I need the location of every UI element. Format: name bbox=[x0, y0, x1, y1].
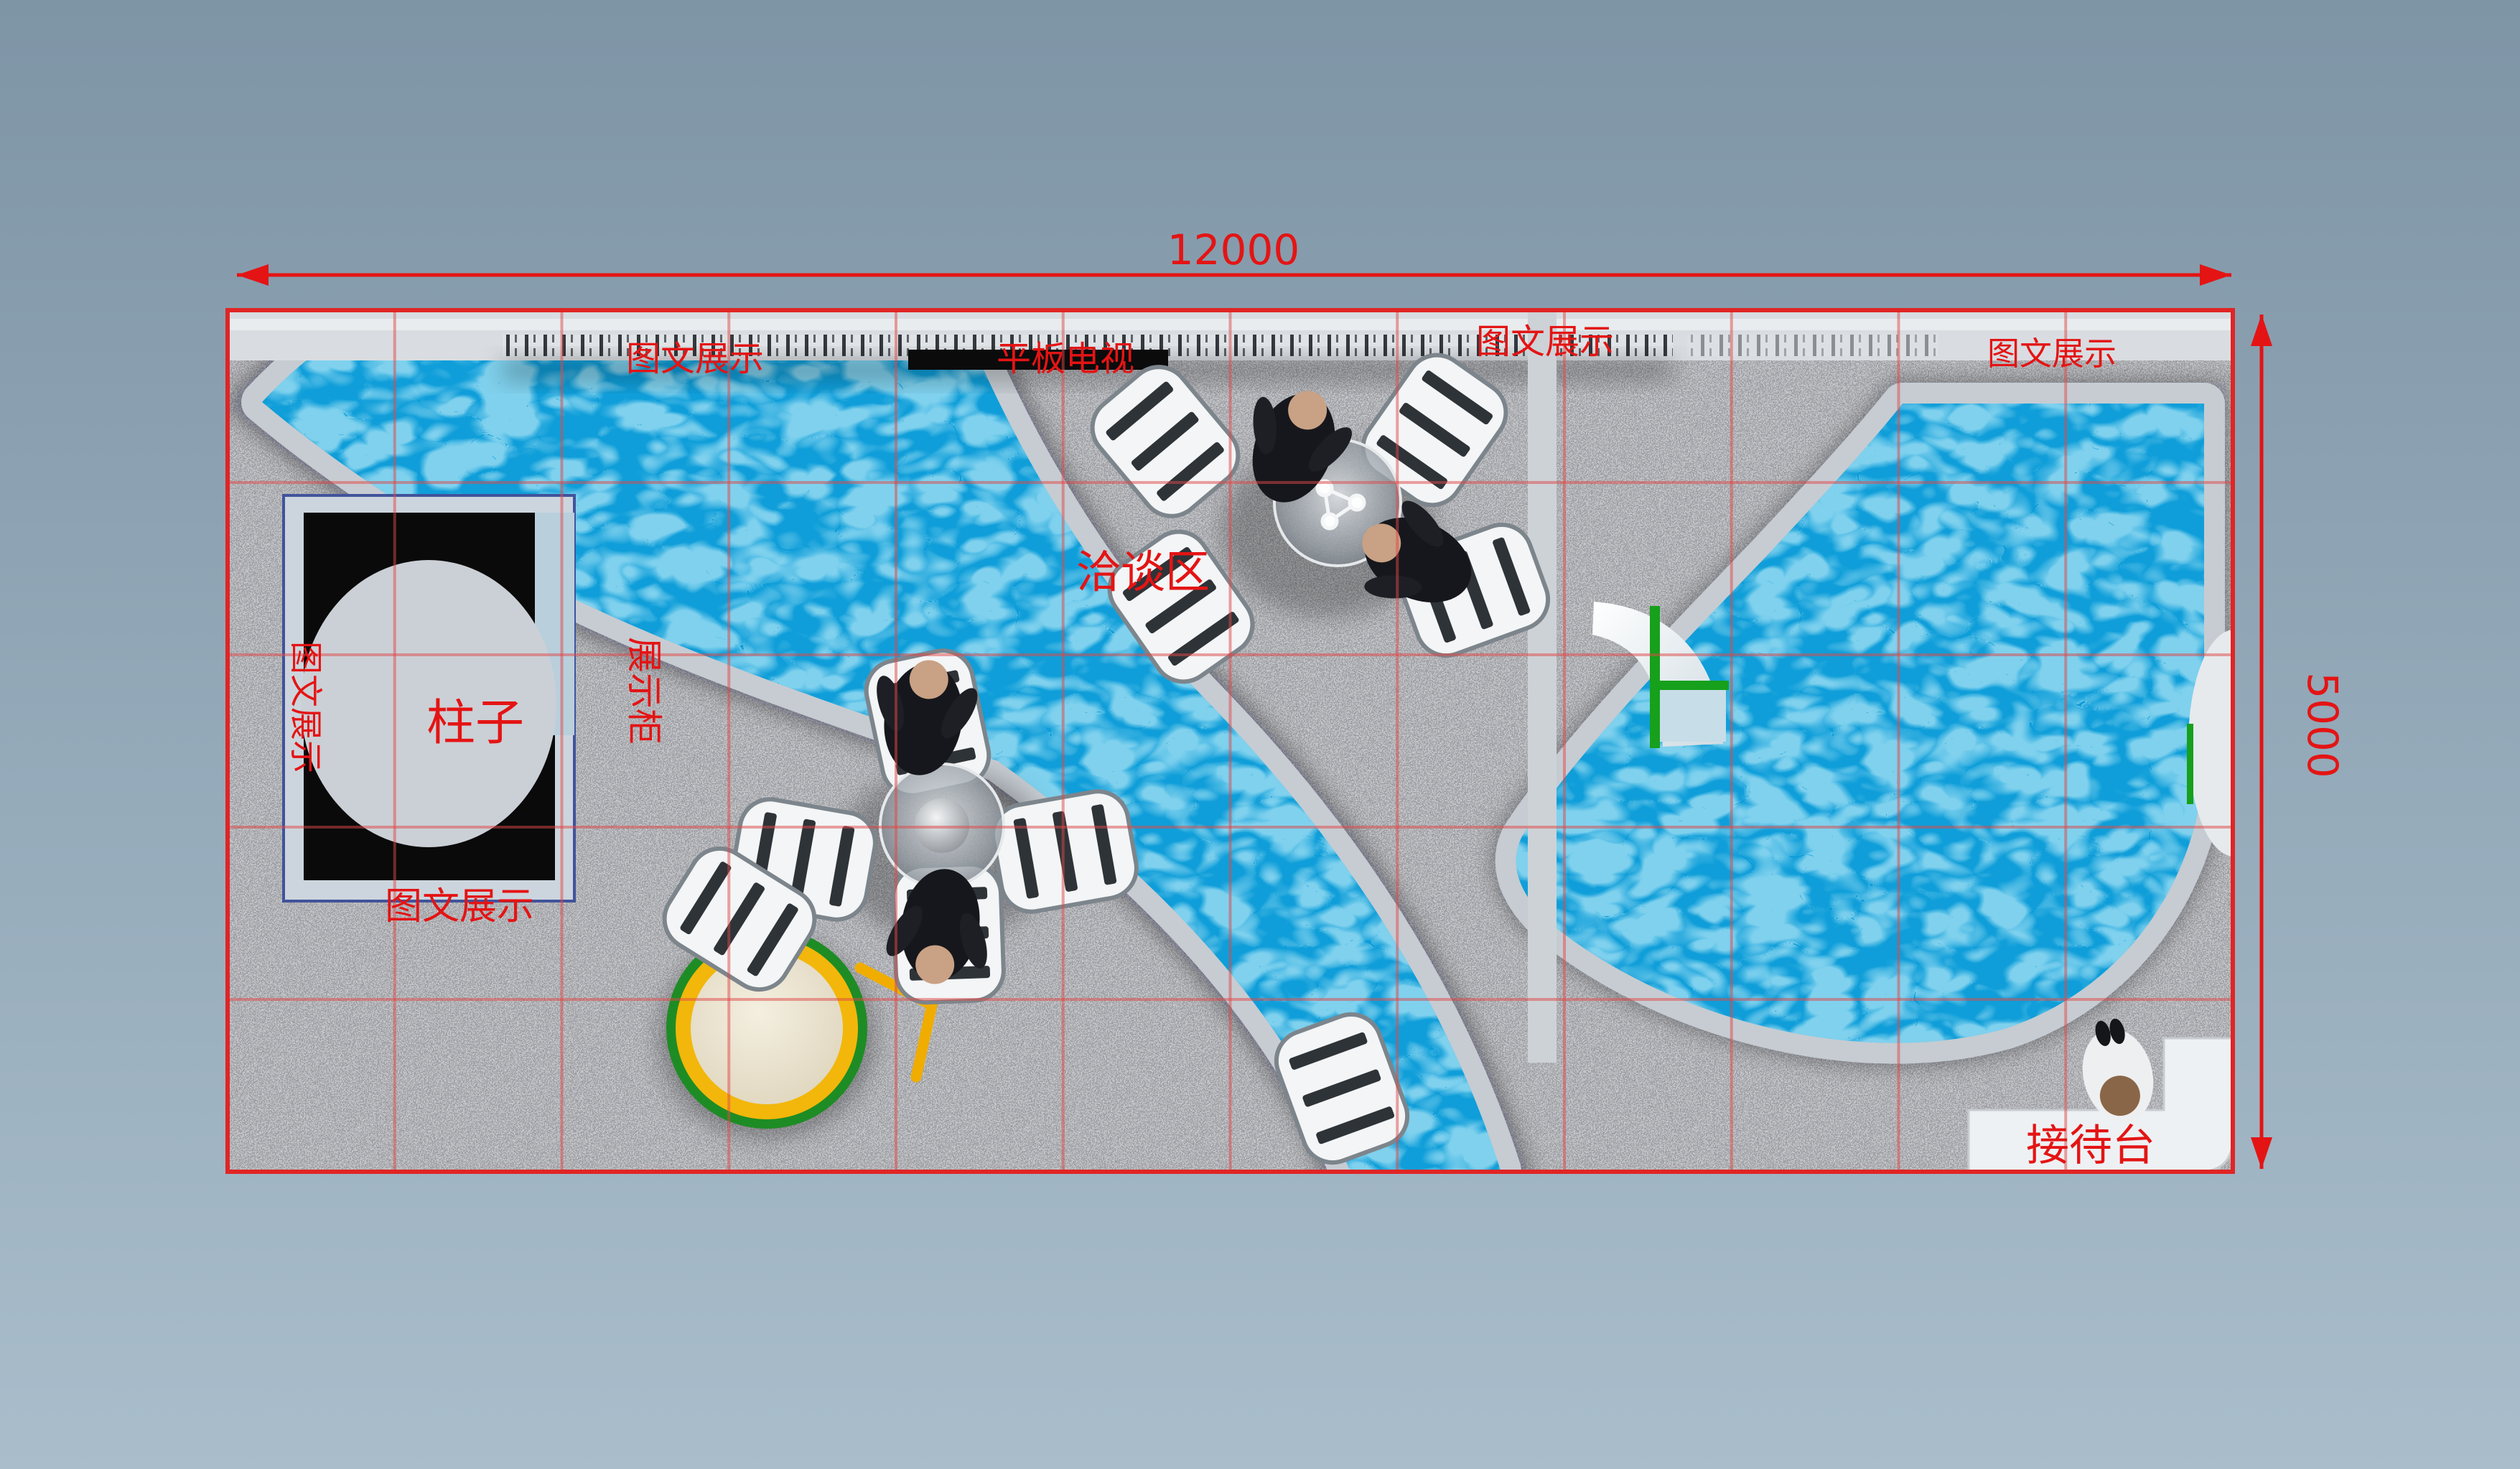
width-dimension-label: 12000 bbox=[1167, 225, 1300, 274]
bulge-green-accent bbox=[2187, 724, 2193, 804]
label-display-top-right: 图文展示 bbox=[1987, 335, 2117, 373]
label-reception-desk: 接待台 bbox=[2026, 1121, 2155, 1171]
label-display-left-vertical: 图文展示 bbox=[286, 641, 325, 773]
booth-plan bbox=[228, 310, 2280, 1172]
label-display-top-left: 图文展示 bbox=[626, 339, 764, 379]
label-display-bottom: 图文展示 bbox=[385, 885, 534, 928]
label-display-top-mid: 图文展示 bbox=[1476, 322, 1614, 362]
chair bbox=[988, 787, 1141, 917]
floorplan-canvas: 12000 5000 图文展示 平板电视 图文展示 图文展示 图文展示 展示柜 … bbox=[0, 0, 2520, 1469]
divider-wall bbox=[1528, 310, 1557, 1063]
green-trim-horizontal bbox=[1660, 681, 1729, 690]
green-trim-vertical bbox=[1650, 606, 1660, 748]
glass-panel bbox=[1660, 690, 1726, 742]
label-negotiation-area: 洽谈区 bbox=[1076, 546, 1210, 598]
label-display-cabinet: 展示柜 bbox=[623, 637, 665, 745]
label-flat-tv: 平板电视 bbox=[997, 339, 1134, 379]
height-dimension-label: 5000 bbox=[2298, 672, 2347, 778]
graphic-panel-strip-right bbox=[1687, 335, 1938, 356]
label-pillar: 柱子 bbox=[426, 695, 524, 752]
